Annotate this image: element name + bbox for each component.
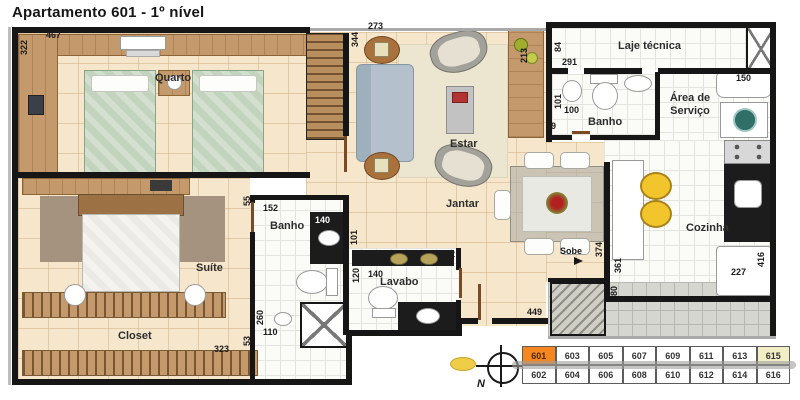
dim: 213 [520, 48, 529, 63]
stairs [550, 282, 606, 336]
shower-box [300, 302, 348, 348]
dim: 120 [352, 268, 361, 283]
dim: 99 [546, 122, 556, 131]
quarto-bed-2 [192, 70, 264, 174]
dim: 55 [243, 196, 252, 206]
dim: 162 [440, 250, 455, 259]
vessel-sink-2 [420, 253, 438, 265]
tablet [28, 95, 44, 115]
label-suite: Suíte [196, 262, 223, 274]
terrace-edge [548, 336, 776, 339]
wall-top-right [546, 22, 776, 28]
stove [724, 140, 772, 164]
dim: 467 [46, 31, 61, 40]
wall-bottom-kitchen [604, 296, 776, 302]
vessel-sink-1 [390, 253, 408, 265]
door-quarto [344, 136, 347, 172]
dining-chair-5 [494, 190, 511, 220]
label-sobe: Sobe [560, 246, 582, 256]
flower-centerpiece [546, 192, 568, 214]
dim: 416 [757, 252, 766, 267]
wall-laje-3 [658, 68, 772, 74]
building-outline [512, 361, 796, 369]
wall-bottom-lavabo [346, 330, 462, 336]
suite-bed [82, 214, 180, 292]
door-banho-suite [251, 202, 254, 232]
lamp-top [374, 42, 389, 57]
sofa [356, 64, 414, 162]
label-estar: Estar [450, 138, 478, 150]
dim: 110 [263, 328, 278, 337]
wall-quarto-bottom [12, 172, 310, 178]
stool-1 [640, 172, 672, 200]
label-cozinha: Cozinha [686, 222, 729, 234]
wall-banho-suite-left2 [250, 232, 255, 380]
dim: 374 [595, 242, 604, 257]
dim: 84 [554, 42, 563, 52]
label-lavabo: Lavabo [380, 276, 419, 288]
toilet-tank-banho-suite [326, 268, 338, 296]
label-jantar: Jantar [446, 198, 479, 210]
keyboard [126, 50, 160, 57]
lamp-bottom [374, 158, 389, 173]
sink-banho-suite [318, 230, 340, 246]
wall-entry-2 [492, 318, 548, 324]
dim: 140 [315, 216, 330, 225]
compass-line-v [500, 345, 502, 387]
door-banho-social [572, 131, 590, 134]
dining-chair-2 [560, 152, 590, 169]
toilet-tank-lavabo [372, 308, 396, 318]
kitchen-island [612, 160, 644, 260]
tv-suite [150, 180, 172, 191]
toilet-banho-suite [296, 270, 328, 294]
wall-lavabo-right1 [456, 248, 461, 270]
door-entry [478, 284, 481, 320]
dim: 101 [350, 230, 359, 245]
desk [55, 34, 307, 56]
pedestal-sink-social [562, 80, 582, 102]
bidet-banho-suite [274, 312, 292, 326]
wall-banho-social-right [655, 72, 660, 136]
suite-headboard [78, 194, 184, 216]
quarto-bed-1 [84, 70, 156, 174]
dim: 344 [351, 32, 360, 47]
wall-bottom-left [12, 379, 352, 385]
wall-banho-suite-top [250, 195, 346, 200]
wall-step-a [346, 330, 352, 385]
dim: 150 [736, 74, 751, 83]
dim: 227 [731, 268, 746, 277]
dining-chair-1 [524, 152, 554, 169]
label-quarto: Quarto [155, 72, 191, 84]
sink-lavabo [416, 308, 440, 324]
nightstand-suite-left [64, 284, 86, 306]
counter-sink-social [624, 75, 652, 92]
nightstand-suite-right [184, 284, 206, 306]
dim: 260 [256, 310, 265, 325]
wall-laje-1 [550, 68, 568, 74]
dim: 273 [368, 22, 383, 31]
toilet-social [592, 82, 618, 110]
dim: 449 [527, 308, 542, 317]
wardrobe-quarto [306, 33, 346, 140]
wall-banho-lavabo [343, 195, 349, 335]
wall-lavabo-right2 [456, 300, 461, 336]
dim: 152 [263, 204, 278, 213]
dim: 291 [562, 58, 577, 67]
sun-icon [450, 357, 476, 371]
dim: 101 [554, 94, 563, 109]
outer-trim [8, 27, 11, 385]
dim: 53 [243, 336, 252, 346]
label-banho-suite: Banho [270, 220, 304, 232]
label-laje: Laje técnica [618, 40, 681, 52]
toilet-lavabo [368, 286, 398, 310]
label-closet: Closet [118, 330, 152, 342]
wall-quarto-estar [343, 33, 349, 136]
wall-banho-social-bottom2 [590, 135, 660, 140]
tv-red [452, 92, 468, 103]
stool-2 [640, 200, 672, 228]
balcony-rail [310, 28, 546, 31]
sobe-arrow-icon [574, 257, 583, 265]
kitchen-sink [734, 180, 762, 208]
label-banho-social: Banho [588, 116, 622, 128]
wall-left [12, 27, 18, 385]
wall-kitchen-left [604, 162, 610, 298]
wall-banho-social-bottom1 [550, 135, 572, 140]
dim: 100 [564, 106, 579, 115]
dim: 361 [614, 258, 623, 273]
dim: 140 [368, 270, 383, 279]
plan-title: Apartamento 601 - 1º nível [12, 4, 204, 21]
north-label: N [477, 378, 485, 390]
wall-laje-2 [584, 68, 642, 74]
dim: 322 [20, 40, 29, 55]
wall-stairs-top [548, 278, 604, 282]
dining-chair-3 [524, 238, 554, 255]
door-lavabo [459, 268, 462, 298]
dim: 323 [214, 345, 229, 354]
label-area-servico: Área de Serviço [664, 92, 716, 117]
dim: 80 [610, 286, 619, 296]
washer-drum [733, 108, 757, 132]
monitor [120, 36, 166, 50]
